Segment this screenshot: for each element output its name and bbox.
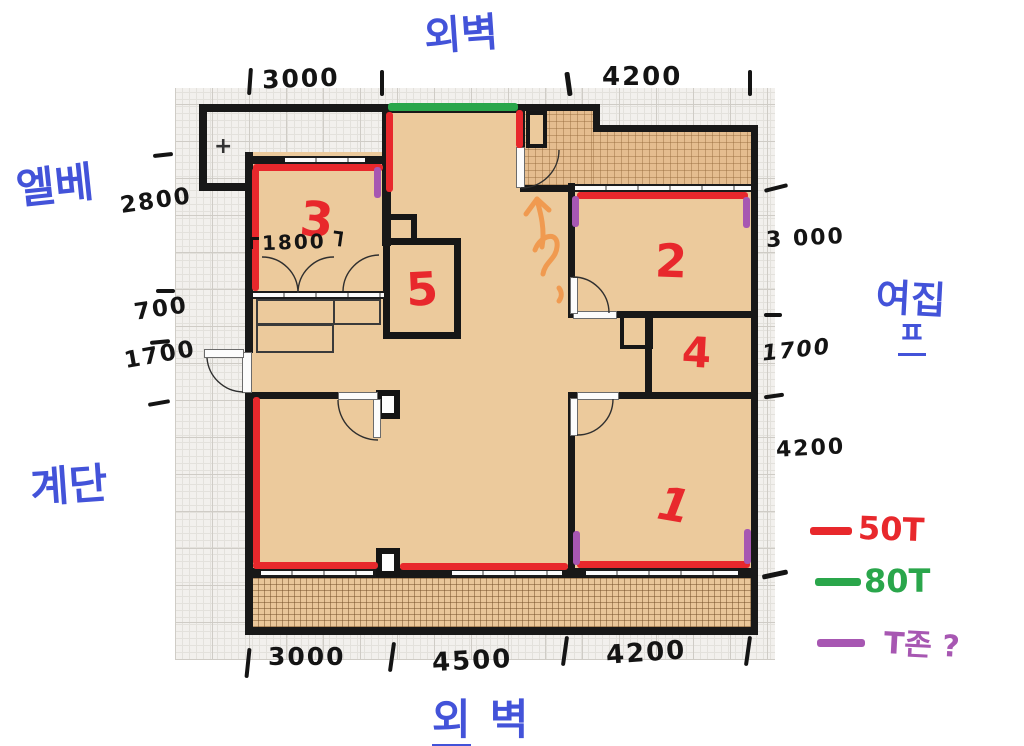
- closet-shelf: [256, 324, 334, 353]
- red-line-room3-top: [253, 164, 383, 171]
- wall-entry-top-east: [593, 125, 758, 132]
- green-line-80t-top: [388, 103, 518, 111]
- window-room3-north: [285, 156, 365, 164]
- window-room1-south: [586, 569, 738, 577]
- wall-lobby-left: [199, 104, 207, 190]
- lobby-plus-mark: +: [214, 134, 234, 159]
- red-line-room3-left: [252, 168, 259, 291]
- legend-label-50t: 50T: [857, 509, 925, 549]
- tick-top-2: [380, 70, 384, 96]
- label-neighbor-line2: ㅍ: [898, 308, 926, 356]
- threshold-hall-door: [338, 392, 378, 400]
- red-line-hall-west: [386, 112, 393, 192]
- window-hall-south: [452, 569, 562, 577]
- tick-right-2: [764, 313, 782, 317]
- wall-unit-left-lower: [245, 392, 253, 578]
- threshold-room2-door: [573, 311, 617, 319]
- wall-entry-top-west: [517, 104, 600, 111]
- legend-label-tzone: T존 ?: [883, 618, 961, 666]
- closet-divider: [333, 299, 335, 325]
- label-bottom-wall-part1: 외: [432, 695, 471, 746]
- wall-room3-top-east: [365, 156, 385, 164]
- red-line-room2-top: [577, 192, 748, 199]
- label-elevator: 엘베: [13, 148, 96, 217]
- legend-label-80t: 80T: [864, 562, 930, 600]
- entry-closet-nook: [526, 111, 547, 148]
- threshold-room3-doors: [253, 291, 384, 299]
- label-bottom-wall-part2: 벽: [490, 695, 529, 744]
- label-bottom-exterior-wall: 외 벽: [432, 686, 528, 746]
- balcony-floor: [252, 578, 751, 627]
- doorslab-entry: [516, 147, 525, 188]
- doorslab-front: [242, 352, 252, 393]
- wall-room3-top-west: [250, 156, 285, 164]
- column-south: [376, 548, 400, 577]
- red-line-hall-bottom: [400, 563, 568, 570]
- dim-bottom-3000: 3000: [268, 642, 346, 671]
- doorleaf-hall: [373, 399, 381, 438]
- tick-left-1: [153, 152, 173, 158]
- wall-balcony-left: [245, 568, 253, 634]
- purple-mark-room1-left: [573, 531, 580, 565]
- red-line-entry-left: [516, 110, 523, 148]
- dim-room3-1800: 1800: [262, 229, 326, 255]
- dim-top-3000: 3000: [262, 63, 341, 95]
- closet-under-room3: [256, 299, 381, 325]
- tick-top-4: [748, 70, 752, 96]
- window-entry-room2: [575, 184, 751, 192]
- doorleaf-room2: [570, 277, 578, 314]
- purple-mark-room1-right: [744, 529, 751, 564]
- doorleaf-front: [204, 349, 244, 358]
- dim-right-4200: 4200: [775, 434, 845, 463]
- entry-hall-floor-east: [593, 132, 751, 185]
- purple-mark-room2-right: [743, 197, 750, 228]
- dim-bottom-4500: 4500: [431, 644, 513, 678]
- wall-balcony-bottom: [245, 627, 758, 635]
- doorleaf-room1: [570, 398, 578, 436]
- dim-1800-bracket-left: [250, 237, 259, 249]
- purple-mark-room2-left: [572, 196, 579, 227]
- room-label-2: 2: [654, 233, 688, 288]
- wall-entry-bottom: [520, 185, 575, 192]
- wall-living-north: [252, 392, 338, 399]
- legend-swatch-80t: [815, 578, 861, 586]
- red-line-room1-bottom: [577, 561, 750, 568]
- floorplan-sketch: + 1 2 3 4 5 1800 3000 4200 2800 700 1700…: [0, 0, 1024, 746]
- legend-swatch-50t: [810, 527, 852, 535]
- dim-top-4200: 4200: [602, 62, 682, 92]
- label-stairs: 계단: [28, 449, 109, 515]
- room-label-5: 5: [405, 261, 440, 317]
- red-line-living-bottom: [253, 562, 378, 569]
- tick-left-4: [148, 399, 170, 407]
- window-living-south: [261, 569, 373, 577]
- wall-room4-left: [645, 318, 652, 392]
- legend-swatch-tzone: [817, 639, 865, 647]
- dim-bottom-4200: 4200: [605, 635, 687, 671]
- dim-right-3000: 3 000: [765, 224, 845, 253]
- purple-mark-room3: [374, 167, 381, 198]
- red-line-living-left: [253, 397, 260, 565]
- room-label-4: 4: [681, 327, 713, 377]
- tick-left-2: [156, 289, 175, 293]
- label-top-exterior-wall: 외벽: [422, 0, 499, 62]
- wall-unit-right: [751, 125, 758, 634]
- threshold-room1-door: [577, 392, 619, 400]
- wall-lobby-top: [199, 104, 390, 112]
